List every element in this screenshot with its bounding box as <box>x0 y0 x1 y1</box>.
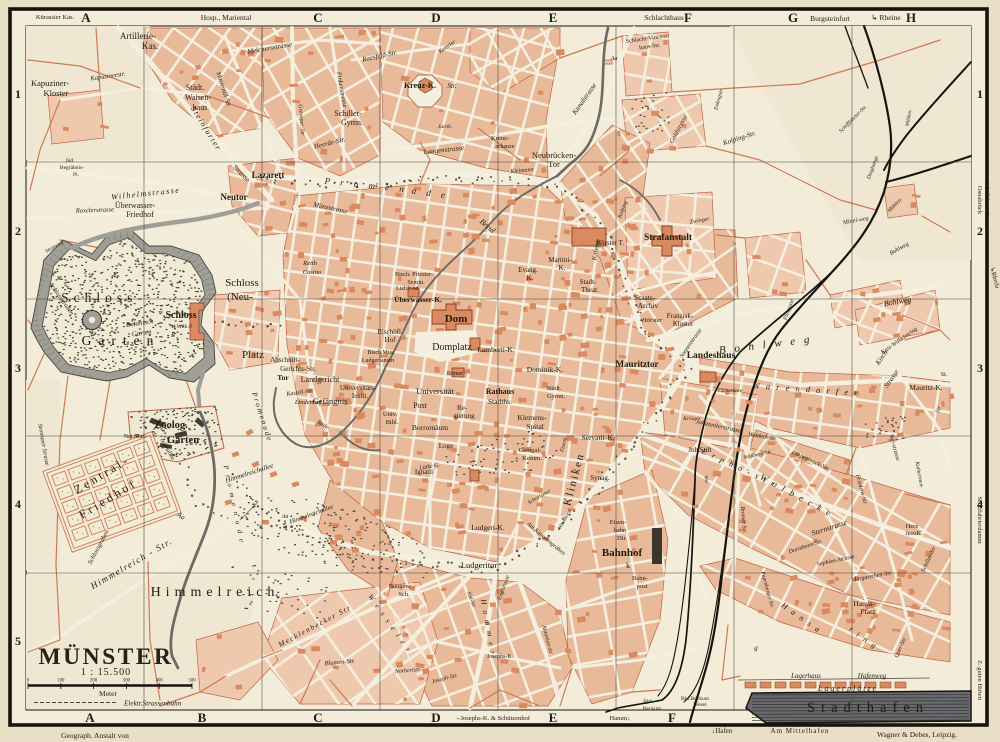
svg-text:K.: K. <box>527 274 534 282</box>
svg-text:A: A <box>81 10 91 25</box>
svg-text:Städt.: Städt. <box>547 385 562 392</box>
svg-text:C: C <box>313 10 322 25</box>
svg-text:Artillerie-: Artillerie- <box>120 31 156 41</box>
svg-text:Reith: Reith <box>302 260 317 267</box>
svg-text:Jüd.: Jüd. <box>65 158 75 164</box>
svg-text:F: F <box>668 710 676 725</box>
svg-text:1 : 15.500: 1 : 15.500 <box>81 667 131 678</box>
svg-text:Pl.: Pl. <box>73 172 80 178</box>
svg-text:Gymn.: Gymn. <box>341 118 363 127</box>
svg-text:Synag.: Synag. <box>590 474 610 482</box>
svg-text:bahn: bahn <box>614 527 627 534</box>
svg-text:Kas.: Kas. <box>142 41 158 51</box>
svg-text:Geograph. Anstalt von: Geograph. Anstalt von <box>61 731 129 740</box>
svg-text:Bahn-: Bahn- <box>632 575 648 582</box>
svg-text:1: 1 <box>977 87 983 101</box>
svg-text:Domplatz: Domplatz <box>432 342 472 353</box>
svg-text:Hörster: Hörster <box>641 317 663 324</box>
svg-text:Hafenweg: Hafenweg <box>857 672 887 680</box>
svg-text:Kloster: Kloster <box>43 88 68 98</box>
svg-text:Baugew.: Baugew. <box>389 583 412 590</box>
svg-text:Semin.: Semin. <box>407 279 425 286</box>
svg-text:5: 5 <box>15 634 21 648</box>
svg-text:E: E <box>549 10 558 25</box>
svg-text:K.Wilh.P.: K.Wilh.P. <box>171 324 193 330</box>
svg-text:D: D <box>431 710 440 725</box>
svg-text:g: g <box>754 644 758 652</box>
svg-text:Am Mittelhafen: Am Mittelhafen <box>771 727 830 735</box>
svg-text:Schlachthaus: Schlachthaus <box>644 13 684 22</box>
svg-text:Aa: Aa <box>281 514 289 520</box>
svg-text:Bibl.: Bibl. <box>386 419 399 426</box>
svg-text:Garten: Garten <box>167 435 199 446</box>
svg-text:Theat.: Theat. <box>581 286 599 294</box>
svg-text:Bisch.Mus.: Bisch.Mus. <box>367 350 395 356</box>
svg-text:Sch.: Sch. <box>398 591 410 598</box>
svg-text:St.: St. <box>941 372 948 378</box>
svg-text:Römer: Römer <box>447 371 463 377</box>
svg-text:↓Hafen: ↓Hafen <box>712 727 733 735</box>
svg-text:Lazarett: Lazarett <box>252 170 285 180</box>
svg-text:Osnabrück: Osnabrück <box>976 186 983 215</box>
svg-text:2: 2 <box>977 224 983 238</box>
svg-text:Gerichts-Str.: Gerichts-Str. <box>280 365 316 373</box>
svg-text:→Josephs-K. & Schützenhof: →Josephs-K. & Schützenhof <box>454 715 531 722</box>
svg-text:gierung: gierung <box>453 412 475 420</box>
svg-text:Hörster T.: Hörster T. <box>596 239 624 247</box>
svg-text:Aa: Aa <box>610 56 618 62</box>
svg-text:Kürassier Kas.: Kürassier Kas. <box>36 14 75 21</box>
svg-text:Bischöfl.: Bischöfl. <box>377 328 403 336</box>
svg-text:post: post <box>637 583 648 590</box>
svg-text:Tor: Tor <box>548 159 560 169</box>
svg-text:Mauritztor: Mauritztor <box>616 359 659 369</box>
svg-text:Ludgeri-K.: Ludgeri-K. <box>471 523 505 532</box>
svg-text:Beckum: Beckum <box>643 706 662 712</box>
svg-text:Nat.Mus.: Nat.Mus. <box>124 434 147 440</box>
svg-text:Elektr.Strassenbahn: Elektr.Strassenbahn <box>123 700 182 708</box>
svg-text:Lindenhof: Lindenhof <box>294 399 323 406</box>
svg-text:Schiffahrterdamm: Schiffahrterdamm <box>976 496 983 543</box>
svg-text:Josephs-K.: Josephs-K. <box>487 654 514 660</box>
svg-text:B: B <box>198 710 207 725</box>
svg-text:Bahnhof: Bahnhof <box>602 547 643 559</box>
svg-text:Friedhof: Friedhof <box>126 210 154 219</box>
svg-text:Universität: Universität <box>416 386 454 396</box>
svg-text:v.Scharlawe: v.Scharlawe <box>718 389 743 394</box>
svg-text:Bhf.Beckum: Bhf.Beckum <box>681 695 710 702</box>
svg-text:1: 1 <box>15 87 21 101</box>
svg-text:300: 300 <box>123 679 131 684</box>
svg-text:Spital: Spital <box>526 422 544 431</box>
svg-text:Bhf.: Bhf. <box>643 698 653 705</box>
svg-text:Instit.: Instit. <box>352 392 368 400</box>
svg-text:Post: Post <box>413 401 428 410</box>
svg-text:Kreuz-: Kreuz- <box>491 135 509 142</box>
svg-text:Abschnitt-: Abschnitt- <box>270 356 300 364</box>
svg-text:Burgsteinfurt: Burgsteinfurt <box>810 14 851 23</box>
svg-text:Überwasser-K.: Überwasser-K. <box>394 295 442 304</box>
svg-text:Gymn.: Gymn. <box>547 393 565 400</box>
svg-text:Ludgeritor: Ludgeritor <box>461 560 498 570</box>
svg-text:Hosp., Mariental: Hosp., Mariental <box>201 13 252 22</box>
svg-text:Wagner & Debes, Leipzig.: Wagner & Debes, Leipzig. <box>877 730 957 739</box>
svg-text:Borromäum: Borromäum <box>412 423 448 432</box>
svg-text:100: 100 <box>57 679 65 684</box>
svg-text:k: k <box>626 561 630 570</box>
svg-text:Dominik-K.: Dominik-K. <box>527 365 564 374</box>
svg-text:Schloss-: Schloss- <box>61 290 147 305</box>
svg-text:Begräbnis-: Begräbnis- <box>60 165 84 171</box>
svg-text:Neutor: Neutor <box>221 192 248 202</box>
svg-text:200: 200 <box>90 679 98 684</box>
svg-text:Stadt-: Stadt- <box>580 278 597 286</box>
svg-text:Archiv: Archiv <box>638 301 659 310</box>
svg-text:General-: General- <box>519 447 542 454</box>
svg-text:F: F <box>684 10 692 25</box>
svg-text:G: G <box>788 10 798 25</box>
svg-text:Landgericht: Landgericht <box>301 375 340 384</box>
svg-text:Schloss: Schloss <box>165 310 196 321</box>
svg-text:Platz: Platz <box>242 349 264 361</box>
svg-text:Überwasser-: Überwasser- <box>115 201 156 210</box>
svg-text:H: H <box>906 10 916 25</box>
svg-text:Tor: Tor <box>277 373 289 382</box>
svg-text:Evang.: Evang. <box>518 266 538 274</box>
svg-text:Herz: Herz <box>906 523 919 530</box>
svg-text:Städt.: Städt. <box>186 83 204 92</box>
svg-text:Wesel: Wesel <box>693 702 707 708</box>
svg-text:schanze: schanze <box>496 144 515 150</box>
svg-text:Lagerplätze: Lagerplätze <box>817 684 878 693</box>
svg-text:Jarnh.: Jarnh. <box>438 124 452 130</box>
svg-text:C: C <box>313 710 322 725</box>
svg-text:Eisen-: Eisen- <box>610 519 627 526</box>
svg-text:Ludgerianum: Ludgerianum <box>362 358 395 364</box>
svg-text:Kapuziner-: Kapuziner- <box>31 78 69 88</box>
svg-text:Kreuz-K.: Kreuz-K. <box>404 81 436 90</box>
svg-text:Dir.: Dir. <box>617 535 627 542</box>
svg-text:Roxelerstrasse: Roxelerstrasse <box>75 206 115 214</box>
svg-text:Rathaus: Rathaus <box>486 387 514 396</box>
svg-text:Waisen-: Waisen- <box>185 93 211 102</box>
svg-text:Komm.: Komm. <box>522 455 542 462</box>
svg-text:Universitäts-: Universitäts- <box>340 384 377 392</box>
svg-text:Univ.: Univ. <box>383 411 398 418</box>
svg-text:Himmelreich: Himmelreich <box>151 585 280 600</box>
svg-text:Franzisk-: Franzisk- <box>667 312 694 320</box>
svg-text:Mauritz-K.: Mauritz-K. <box>909 383 943 392</box>
svg-text:JesuK.: JesuK. <box>905 530 923 537</box>
svg-text:Joh.Stift: Joh.Stift <box>688 446 712 454</box>
svg-text:Stadthafen: Stadthafen <box>807 700 929 716</box>
svg-text:↳ Rheine: ↳ Rheine <box>871 13 901 22</box>
svg-text:Zoolog.: Zoolog. <box>154 420 188 431</box>
svg-text:Klemens-: Klemens- <box>517 413 547 422</box>
svg-text:Dom: Dom <box>445 313 468 325</box>
svg-text:Re-: Re- <box>457 404 468 412</box>
svg-text:Schiller-: Schiller- <box>334 109 362 118</box>
svg-text:Hamm↓: Hamm↓ <box>610 715 631 722</box>
svg-text:Loge: Loge <box>439 442 453 450</box>
svg-text:Casino: Casino <box>303 269 322 276</box>
svg-text:3: 3 <box>15 361 21 375</box>
svg-text:3: 3 <box>977 361 983 375</box>
svg-text:Kloster: Kloster <box>673 320 694 328</box>
svg-text:Hof: Hof <box>385 336 397 344</box>
svg-text:Schloss: Schloss <box>225 277 259 289</box>
svg-text:E: E <box>549 710 558 725</box>
svg-text:Z. guten Hirten: Z. guten Hirten <box>976 660 983 701</box>
svg-text:A: A <box>85 710 95 725</box>
svg-text:K.: K. <box>559 264 566 272</box>
svg-text:Str.: Str. <box>447 82 456 90</box>
svg-text:Lamberti-K.: Lamberti-K. <box>477 345 514 354</box>
svg-text:Martini-: Martini- <box>548 256 572 264</box>
svg-text:4: 4 <box>15 497 21 511</box>
svg-text:Strafanstalt: Strafanstalt <box>644 233 693 243</box>
svg-text:400: 400 <box>156 679 164 684</box>
svg-text:Servatii-K.: Servatii-K. <box>581 433 614 442</box>
svg-text:Liebfr.od.: Liebfr.od. <box>396 285 420 292</box>
svg-text:Platz: Platz <box>861 607 877 616</box>
svg-text:(Neu-: (Neu- <box>227 291 253 303</box>
svg-text:2: 2 <box>15 224 21 238</box>
svg-text:Stadths.: Stadths. <box>488 397 512 406</box>
svg-text:Bisch. Priester-: Bisch. Priester- <box>395 271 433 278</box>
svg-text:Schiffahrter Damm: Schiffahrter Damm <box>983 182 990 229</box>
svg-text:500: 500 <box>188 679 196 684</box>
svg-text:Meter: Meter <box>99 689 117 698</box>
svg-text:D: D <box>431 10 440 25</box>
svg-text:Lagerhaus: Lagerhaus <box>790 672 821 680</box>
